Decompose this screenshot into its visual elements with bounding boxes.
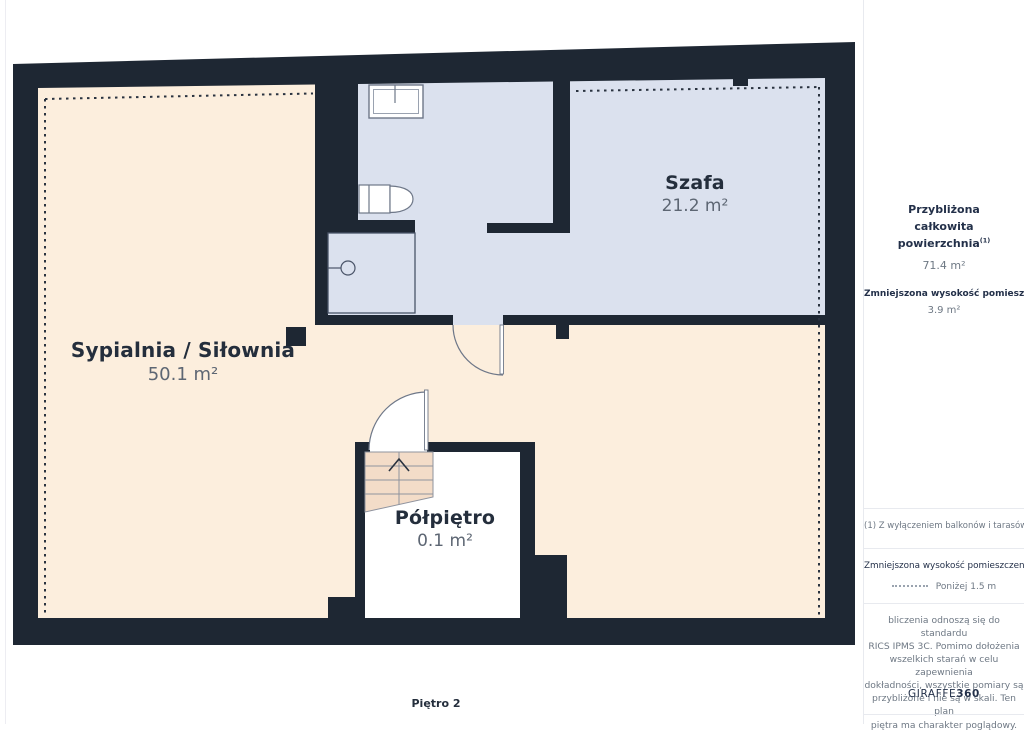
legend-reduced-height-label: Zmniejszona wysokość pomieszczenia (864, 561, 1024, 571)
wall-bathroom (315, 220, 415, 233)
disclaimer-line: piętra ma charakter poglądowy. (864, 719, 1024, 732)
wall-bottom-left-segment (315, 315, 453, 325)
wall-szafa-divider (553, 80, 570, 223)
disclaimer-line: RICS IPMS 3C. Pomimo dołożenia (864, 640, 1024, 653)
floorplan-page: { "plan": { "floor_label": "Piętro 2", "… (0, 0, 1024, 724)
brand-regular: GIRAFFE (908, 688, 956, 700)
structural-column (286, 327, 306, 346)
wall-stub (556, 325, 569, 339)
total-area-block: Przybliżona całkowita powierzchnia(1) 71… (864, 201, 1024, 316)
footnote-text: (1) Z wyłączeniem balkonów i tarasów (864, 521, 1024, 531)
legend-row: Poniżej 1.5 m (864, 582, 1024, 592)
wall-szafa-divider-foot (487, 223, 570, 233)
divider (864, 508, 1024, 509)
legend-reduced-height-value: Poniżej 1.5 m (936, 582, 996, 592)
floor-label: Piętro 2 (376, 697, 496, 710)
giraffe360-logo: GIRAFFE360 (864, 688, 1024, 700)
disclaimer-line: wszelkich starań w celu zapewnienia (864, 653, 1024, 679)
wall-bottom-right-segment (503, 315, 825, 325)
divider (864, 603, 1024, 604)
total-area-label-text: Przybliżona całkowita powierzchnia (898, 203, 980, 250)
info-sidebar: Przybliżona całkowita powierzchnia(1) 71… (863, 0, 1024, 724)
total-area-label: Przybliżona całkowita powierzchnia(1) (880, 201, 1008, 252)
legend-block: Zmniejszona wysokość pomieszczenia Poniż… (864, 561, 1024, 592)
reduced-height-label: Zmniejszona wysokość pomieszczenia (864, 289, 1024, 299)
footnote-block: (1) Z wyłączeniem balkonów i tarasów (864, 521, 1024, 531)
brand-bold: 360 (956, 688, 980, 700)
divider (864, 548, 1024, 549)
footnote-marker: (1) (980, 236, 990, 244)
floorplan-drawing (0, 0, 860, 724)
disclaimer-line: bliczenia odnoszą się do standardu (864, 614, 1024, 640)
door-threshold-bathroom (453, 315, 503, 325)
wall-notch (733, 72, 748, 86)
divider (864, 714, 1024, 715)
dotted-line-icon (892, 585, 928, 587)
total-area-value: 71.4 m² (864, 259, 1024, 272)
reduced-height-value: 3.9 m² (864, 305, 1024, 316)
toilet-icon (359, 185, 413, 213)
sink-icon (369, 85, 423, 118)
